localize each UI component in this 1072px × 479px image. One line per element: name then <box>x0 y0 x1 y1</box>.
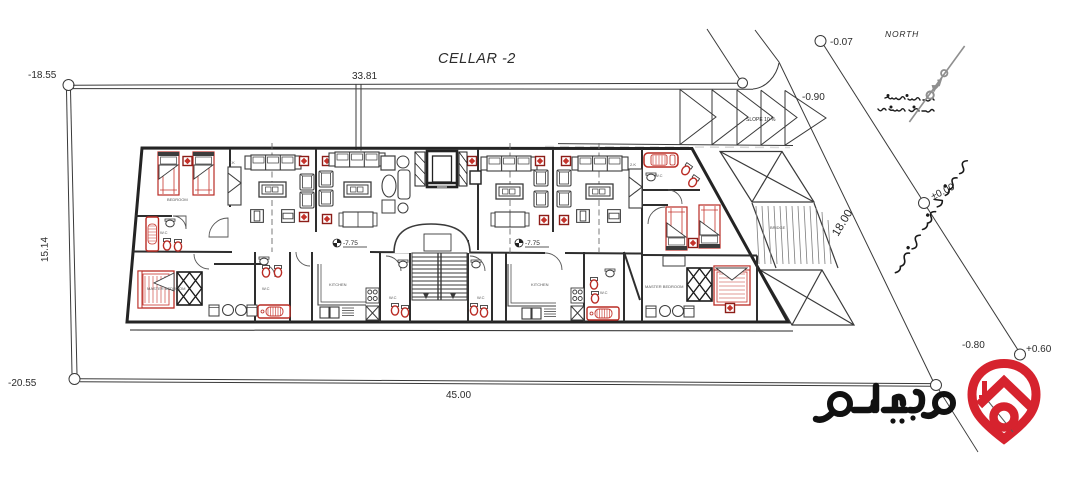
svg-text:2.K: 2.K <box>630 162 636 167</box>
svg-text:W.C: W.C <box>600 290 608 295</box>
svg-text:BEDROOM: BEDROOM <box>167 197 188 202</box>
svg-text:KITCHEN: KITCHEN <box>531 282 549 287</box>
svg-text:CELLAR -2: CELLAR -2 <box>438 51 516 67</box>
svg-text:15.14: 15.14 <box>40 236 51 262</box>
svg-text:+0.60: +0.60 <box>1026 344 1052 355</box>
svg-text:W.C: W.C <box>477 295 485 300</box>
svg-text:45.00: 45.00 <box>446 390 471 401</box>
svg-text:NORTH: NORTH <box>885 29 919 39</box>
svg-text:-7.75: -7.75 <box>343 240 358 247</box>
svg-text:-0.90: -0.90 <box>802 92 825 103</box>
svg-text:-20.55: -20.55 <box>8 378 37 389</box>
svg-text:W.C: W.C <box>389 295 397 300</box>
svg-text:-0.07: -0.07 <box>830 37 853 48</box>
svg-text:W.C: W.C <box>160 230 168 235</box>
svg-text:-7.75: -7.75 <box>525 240 540 247</box>
svg-text:-0.80: -0.80 <box>962 340 985 351</box>
svg-text:MASTER BEDROOM: MASTER BEDROOM <box>645 284 683 289</box>
svg-text:-18.55: -18.55 <box>28 70 57 81</box>
svg-text:SLOPE 10 %: SLOPE 10 % <box>746 117 776 123</box>
svg-text:T.K: T.K <box>229 160 235 165</box>
svg-text:33.81: 33.81 <box>352 71 377 82</box>
svg-text:W.C: W.C <box>262 286 270 291</box>
svg-text:W.C: W.C <box>655 173 663 178</box>
svg-text:MASTER BEDROOM: MASTER BEDROOM <box>147 286 185 291</box>
svg-text:BRIDGE: BRIDGE <box>770 225 786 230</box>
svg-text:KITCHEN: KITCHEN <box>329 282 347 287</box>
